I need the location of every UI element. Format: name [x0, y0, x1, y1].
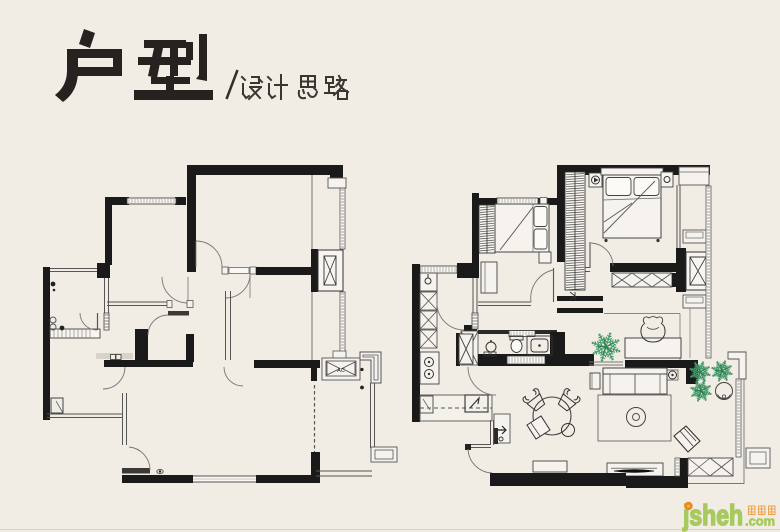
svg-text:.com: .com: [745, 514, 775, 529]
svg-text:AC: AC: [337, 368, 345, 374]
